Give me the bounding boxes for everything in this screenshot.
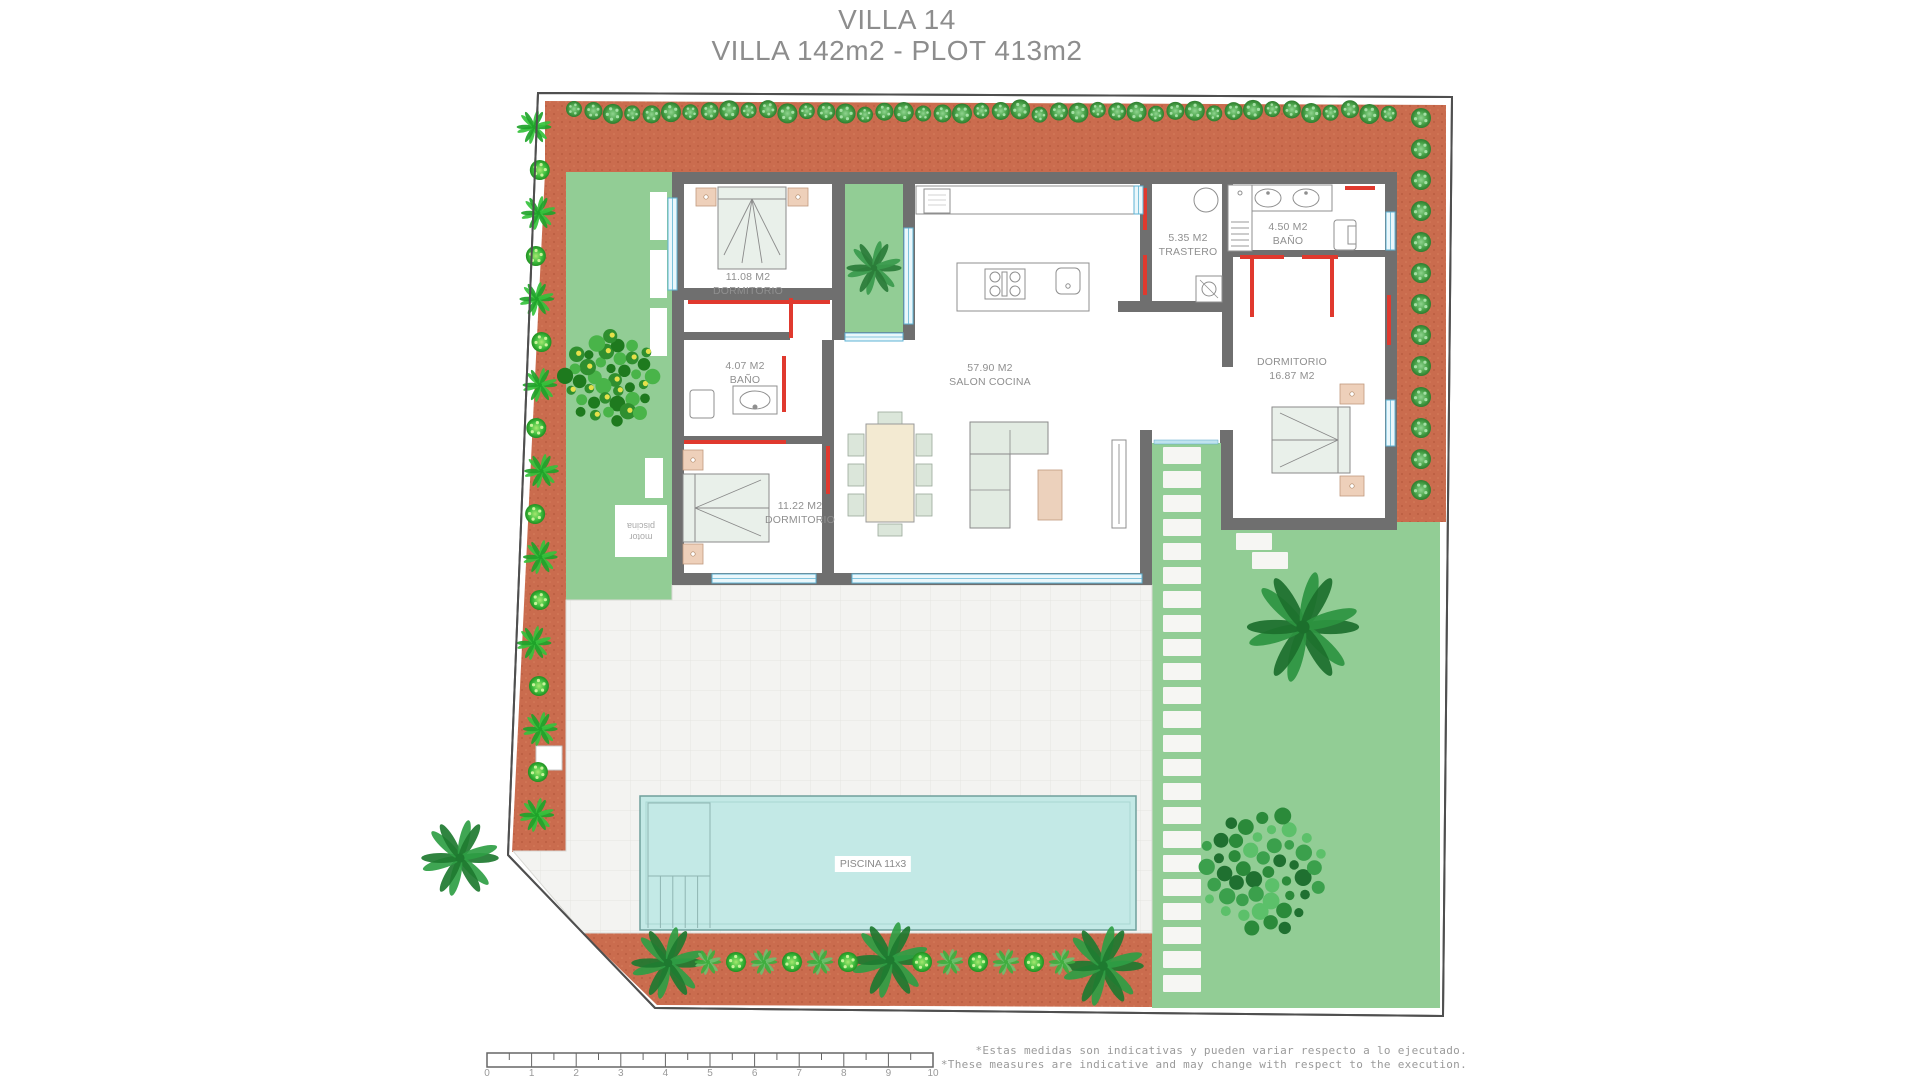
disclaimer-notes: *Estas medidas son indicativas y pueden …: [941, 1044, 1467, 1072]
room-label-salon-cocina: 57.90 M2 SALON COCINA: [949, 361, 1031, 389]
room-area: 16.87 M2: [1257, 369, 1327, 383]
room-label-bano-1: 4.07 M2 BAÑO: [725, 359, 764, 387]
scale-tick-label: 4: [663, 1068, 669, 1079]
scale-tick-label: 9: [886, 1068, 892, 1079]
room-label-dormitorio-2: 11.22 M2 DORMITORIO: [765, 499, 835, 527]
room-area: 4.50 M2: [1268, 220, 1307, 234]
room-name: BAÑO: [1268, 234, 1307, 248]
room-area: 4.07 M2: [725, 359, 764, 373]
room-label-bano-2: 4.50 M2 BAÑO: [1268, 220, 1307, 248]
page-title: VILLA 14 VILLA 142m2 - PLOT 413m2: [711, 4, 1082, 66]
room-area: 11.22 M2: [765, 499, 835, 513]
pool-motor-text: motor piscina: [627, 520, 655, 542]
room-name: DORMITORIO: [765, 513, 835, 527]
scale-tick-label: 2: [573, 1068, 579, 1079]
room-label-dormitorio-1: 11.08 M2 DORMITORIO: [713, 270, 783, 298]
scale-tick-label: 7: [796, 1068, 802, 1079]
plan-canvas: [0, 0, 1920, 1080]
room-area: 11.08 M2: [713, 270, 783, 284]
scale-tick-label: 0: [484, 1068, 490, 1079]
scale-tick-label: 5: [707, 1068, 713, 1079]
pool-motor-box: motor piscina: [615, 505, 667, 557]
disclaimer-es: *Estas medidas son indicativas y pueden …: [941, 1044, 1467, 1058]
room-label-trastero: 5.35 M2 TRASTERO: [1159, 231, 1218, 259]
scale-bar: [487, 1053, 933, 1067]
scale-tick-label: 8: [841, 1068, 847, 1079]
scale-tick-label: 3: [618, 1068, 624, 1079]
disclaimer-en: *These measures are indicative and may c…: [941, 1058, 1467, 1072]
room-area: 5.35 M2: [1159, 231, 1218, 245]
room-name: BAÑO: [725, 373, 764, 387]
scale-tick-label: 1: [529, 1068, 535, 1079]
room-name: SALON COCINA: [949, 375, 1031, 389]
scale-tick-label: 10: [927, 1068, 938, 1079]
room-name: DORMITORIO: [1257, 355, 1327, 369]
room-name: TRASTERO: [1159, 245, 1218, 259]
room-label-dormitorio-3: DORMITORIO 16.87 M2: [1257, 355, 1327, 383]
title-line1: VILLA 14: [711, 4, 1082, 35]
floor-plan-page: VILLA 14 VILLA 142m2 - PLOT 413m2 11.08 …: [0, 0, 1920, 1080]
title-line2: VILLA 142m2 - PLOT 413m2: [711, 35, 1082, 66]
room-area: 57.90 M2: [949, 361, 1031, 375]
scale-tick-label: 6: [752, 1068, 758, 1079]
pool-label: PISCINA 11x3: [835, 856, 911, 872]
room-name: DORMITORIO: [713, 284, 783, 298]
